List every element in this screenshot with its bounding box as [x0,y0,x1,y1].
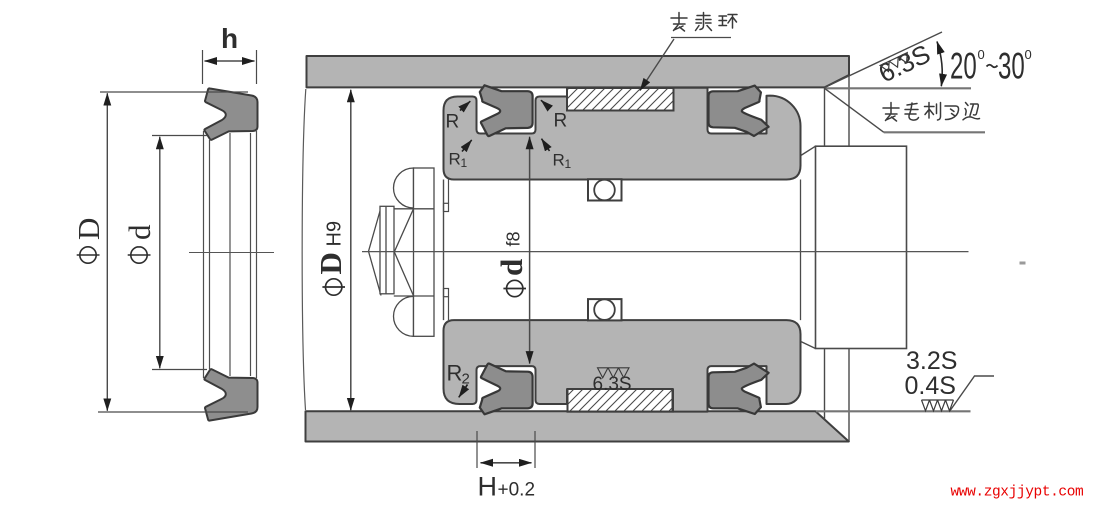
svg-text:3.2S: 3.2S [906,347,957,375]
svg-text:H9: H9 [324,221,346,247]
svg-text:2: 2 [462,371,470,388]
svg-text:6.3S: 6.3S [593,374,632,395]
svg-text:1: 1 [565,157,572,171]
svg-text:R: R [449,150,461,169]
svg-text:R: R [446,111,460,132]
svg-text:1: 1 [461,156,468,170]
svg-text:0.4S: 0.4S [905,372,956,400]
svg-text:D: D [71,218,106,240]
svg-text:0: 0 [978,47,985,62]
svg-text:f8: f8 [504,231,524,246]
svg-text:d: d [122,224,157,240]
svg-text:6.3S: 6.3S [874,38,935,88]
svg-text:0: 0 [1025,47,1032,62]
svg-text:20: 20 [950,45,977,87]
svg-text:R: R [554,111,568,132]
svg-text:H: H [478,472,498,502]
svg-text:+0.2: +0.2 [498,480,536,501]
svg-text:30: 30 [998,45,1025,87]
svg-text:D: D [313,252,348,274]
svg-text:d: d [494,259,529,276]
svg-text:h: h [221,23,238,54]
svg-text:www.zgxjjypt.com: www.zgxjjypt.com [951,485,1084,501]
svg-text:R: R [553,151,565,170]
svg-text:R: R [447,361,463,386]
